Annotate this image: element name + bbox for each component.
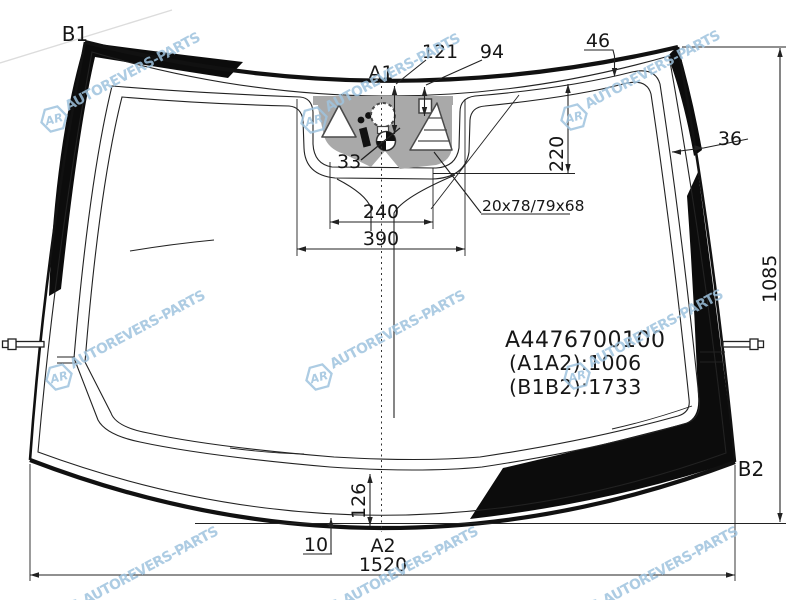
camera-lens-circle-icon: [371, 103, 395, 127]
watermark-logo-text: AR: [43, 110, 65, 128]
dim-33: 33: [337, 151, 361, 173]
dim-220: 220: [546, 136, 568, 172]
watermark: AR AUTOREVERS-PARTS: [577, 523, 742, 600]
dim-94: 94: [480, 41, 504, 63]
label-a2: A2: [370, 535, 395, 557]
dim-46: 46: [586, 30, 610, 52]
label-b2: B2: [738, 457, 764, 481]
dim-390: 390: [363, 228, 399, 250]
label-b1: B1: [62, 22, 88, 46]
watermark-text: AUTOREVERS-PARTS: [80, 523, 221, 600]
dim-240: 240: [363, 201, 399, 223]
dim-sensor-windows: 20x78/79x68: [482, 197, 584, 215]
watermark: AR AUTOREVERS-PARTS: [57, 523, 222, 600]
dim-36: 36: [718, 128, 742, 150]
dim-10: 10: [304, 534, 328, 556]
watermark-text: AUTOREVERS-PARTS: [600, 523, 741, 600]
windshield-diagram: 121 94 46 36 220 1085 240 390 33 126 10 …: [0, 0, 800, 600]
dim-126: 126: [348, 483, 370, 519]
dim-1085: 1085: [759, 255, 781, 303]
windshield-diagram-page: 121 94 46 36 220 1085 240 390 33 126 10 …: [0, 0, 800, 600]
